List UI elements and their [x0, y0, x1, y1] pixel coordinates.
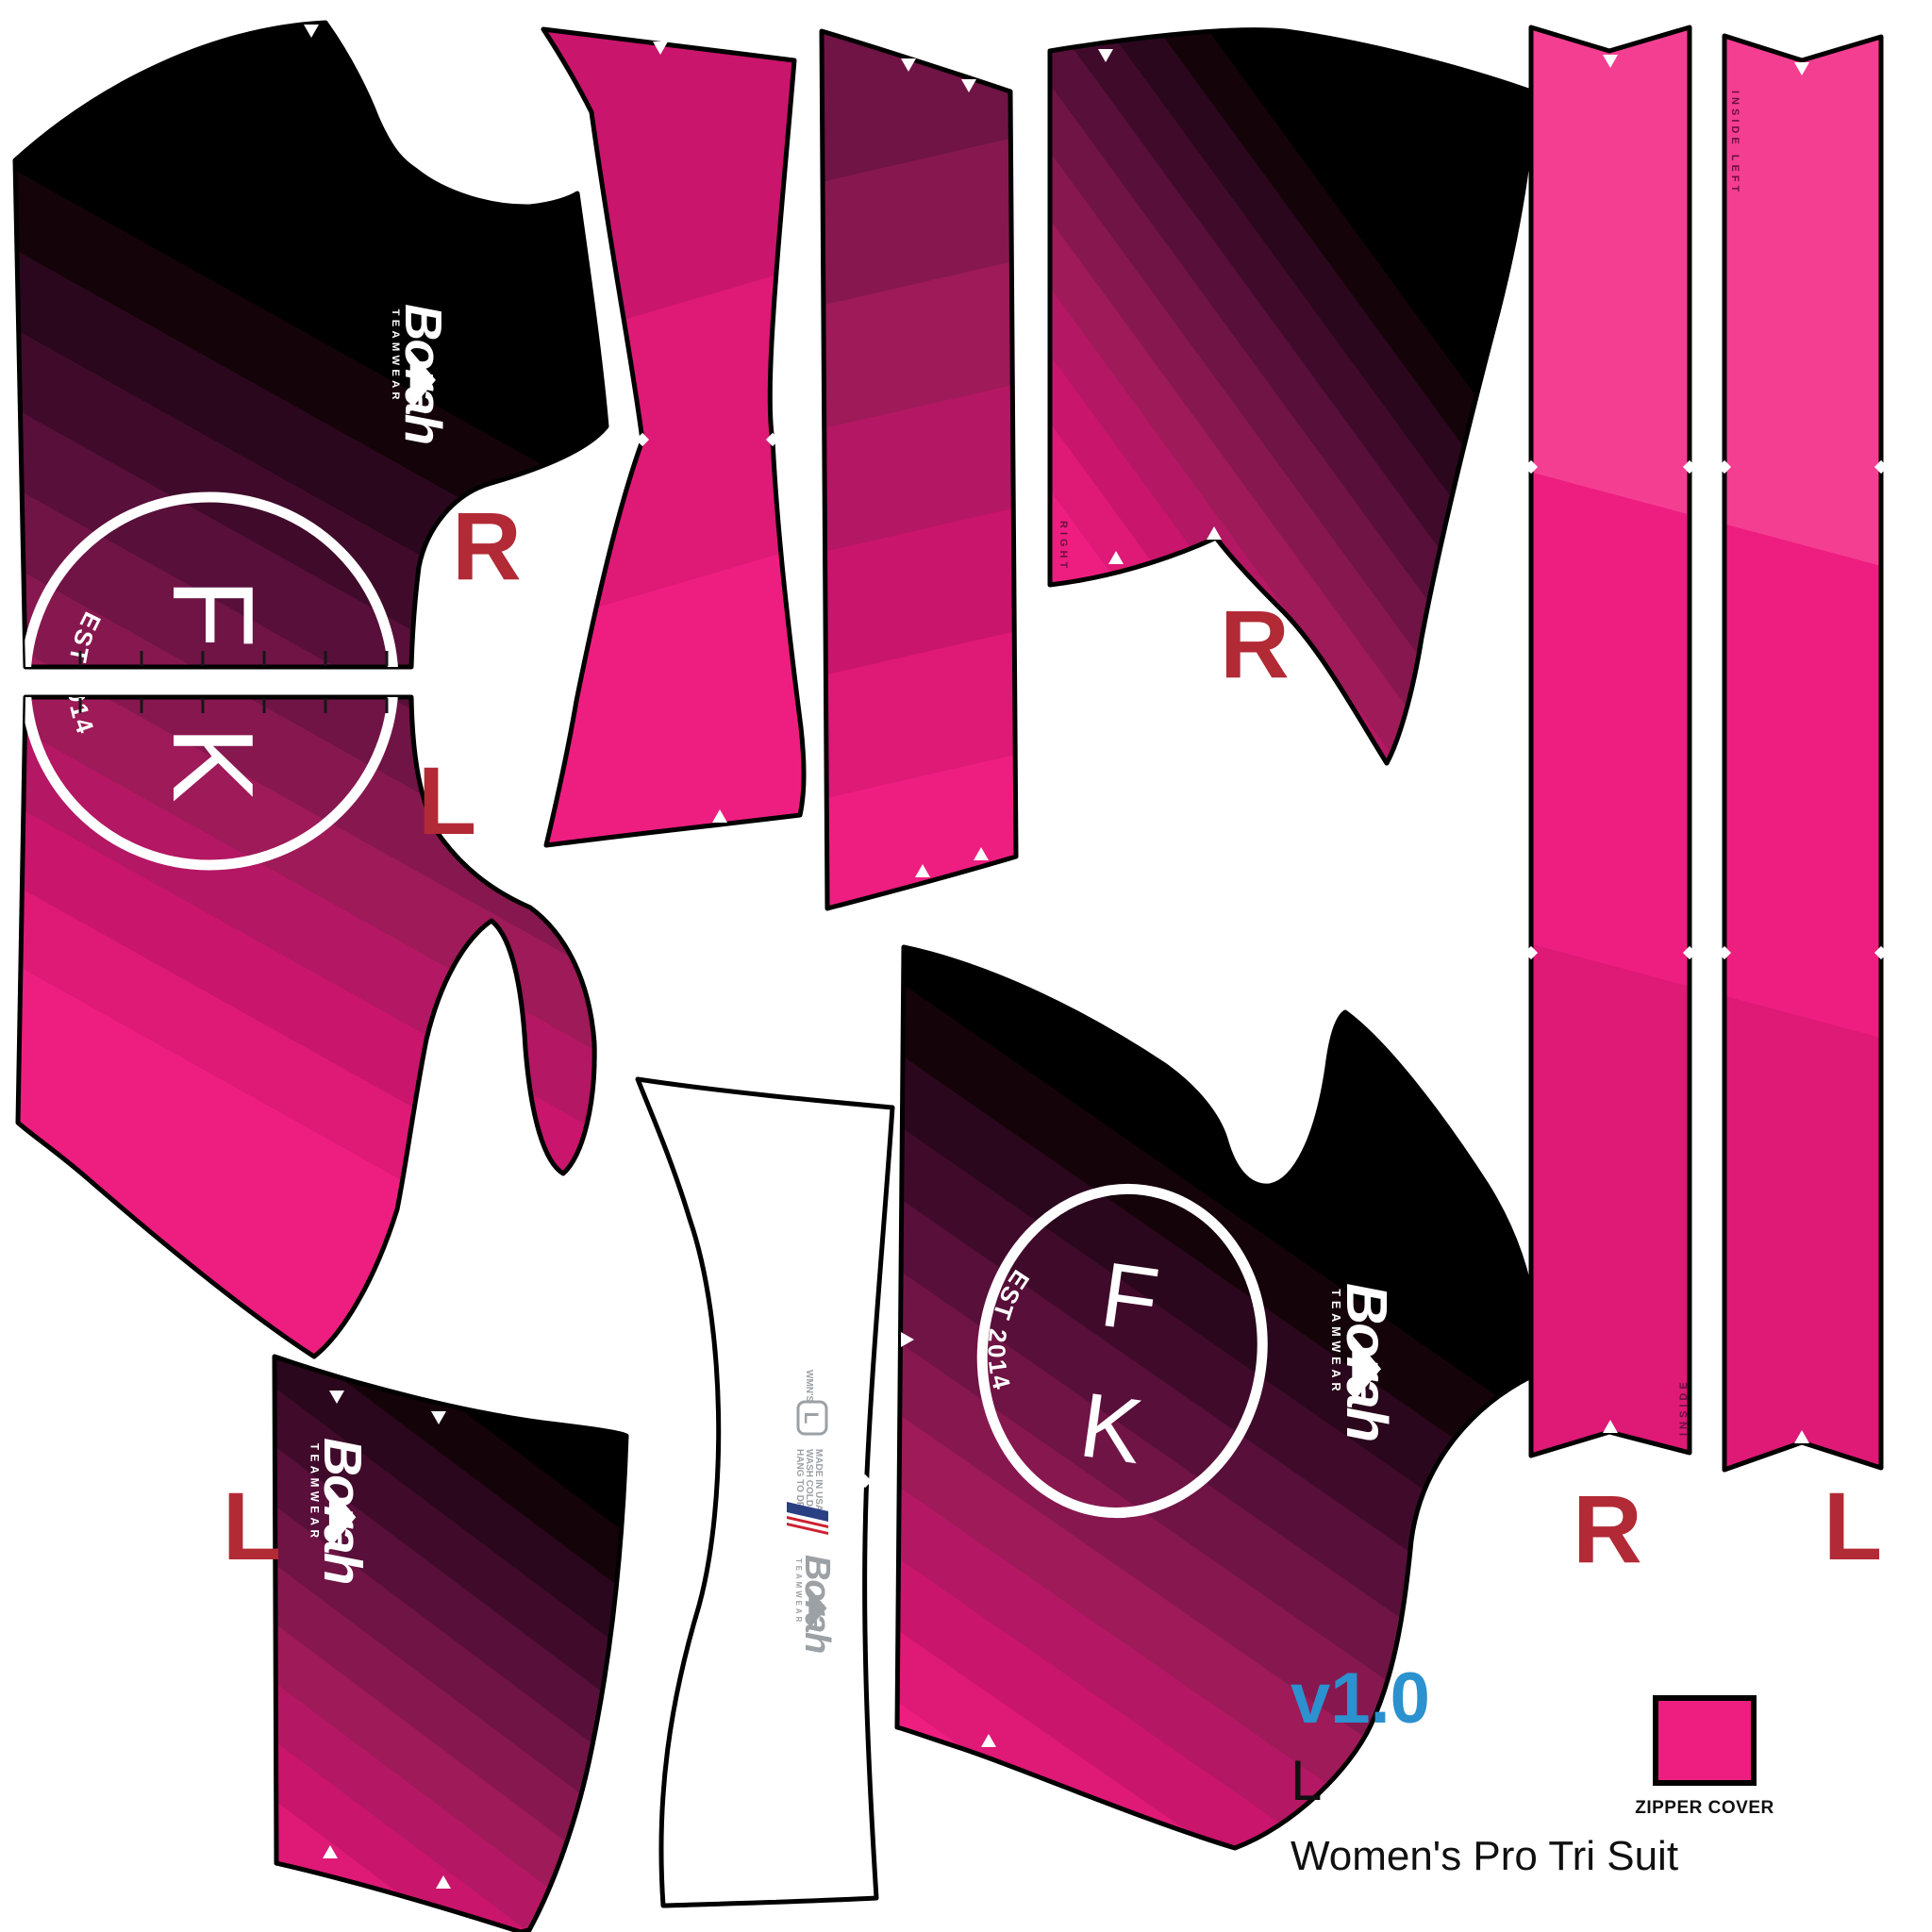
edge-text-right: RIGHT	[1058, 521, 1069, 572]
piece-inner-label-panel	[638, 1079, 892, 1906]
borah-logo-care	[794, 1555, 838, 1653]
piece-zipper-strip-left	[1724, 36, 1881, 1470]
product-name-text: Women's Pro Tri Suit	[1291, 1833, 1678, 1879]
size-text: L	[1291, 1749, 1322, 1812]
piece-zipper-strip-right	[1531, 27, 1690, 1456]
care-garment-tag: WMN'S	[804, 1370, 814, 1402]
side-label-shorts-right: R	[1220, 591, 1290, 698]
borah-logo-front	[390, 304, 452, 444]
side-label-front-lower: L	[418, 747, 476, 855]
side-label-strip-right: R	[1573, 1475, 1642, 1583]
piece-front-lower-half	[18, 697, 594, 1357]
zipper-cover-swatch	[1656, 1698, 1754, 1783]
side-label-strip-left: L	[1824, 1473, 1882, 1580]
borah-logo-back	[1329, 1283, 1399, 1441]
edge-text-inside: INSIDE	[1678, 1378, 1690, 1436]
pattern-canvas: Borah TEAMWEAR ZIPPER COVER F K EST 2014…	[0, 0, 1932, 1932]
fk-letter-f: F	[149, 578, 277, 649]
pattern-print-sheet: Borah TEAMWEAR ZIPPER COVER F K EST 2014…	[0, 0, 1932, 1932]
edge-text-inside-left: INSIDE LEFT	[1729, 91, 1740, 195]
side-label-front-upper: R	[452, 492, 522, 600]
care-size: L	[800, 1412, 822, 1424]
piece-side-panel-straight	[822, 31, 1016, 908]
borah-logo-back-left	[308, 1438, 372, 1584]
zipper-cover-label: ZIPPER COVER	[1635, 1798, 1774, 1818]
fk-letter-k: K	[149, 725, 277, 802]
side-label-back-left: L	[223, 1473, 281, 1580]
piece-shorts-right	[1050, 30, 1534, 763]
piece-back-center	[897, 947, 1537, 1848]
version-text: v1.0	[1291, 1658, 1430, 1739]
